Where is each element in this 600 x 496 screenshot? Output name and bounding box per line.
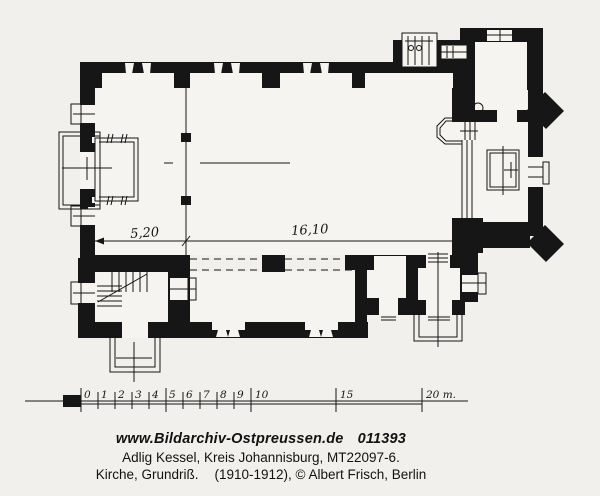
- caption-subject: Kirche, Grundriß.: [96, 467, 199, 482]
- scale-tick-label: 1: [101, 389, 108, 401]
- caption-website-line: www.Bildarchiv-Ostpreussen.de011393: [0, 431, 522, 447]
- scale-tick-label: 3: [135, 389, 142, 401]
- floor-plan-drawing: 5,20 16,10 0 1 2 3 4 5 6 7: [0, 0, 600, 496]
- scale-tick-label: 15: [340, 389, 354, 401]
- scale-tick-label: 2: [117, 389, 125, 401]
- caption-archive-number: 011393: [358, 431, 407, 447]
- scale-tick-label: 0: [84, 389, 91, 401]
- scale-tick-label: 20 m.: [425, 389, 456, 401]
- caption-credit: (1910-1912), © Albert Frisch, Berlin: [214, 467, 426, 482]
- scale-tick-label: 5: [169, 389, 176, 401]
- caption-block: www.Bildarchiv-Ostpreussen.de011393 Adli…: [0, 431, 522, 482]
- scale-bar: 0 1 2 3 4 5 6 7 8 9 10 15 20 m.: [25, 388, 468, 412]
- scale-tick-label: 4: [151, 389, 159, 401]
- scanned-archive-page: { "plan": { "dimension_labels": { "porch…: [0, 0, 600, 496]
- scale-tick-label: 10: [255, 389, 269, 401]
- scale-tick-label: 6: [186, 389, 193, 401]
- caption-website: www.Bildarchiv-Ostpreussen.de: [116, 431, 344, 447]
- scale-tick-labels: 0 1 2 3 4 5 6 7 8 9 10 15 20 m.: [84, 389, 456, 401]
- scale-tick-label: 9: [237, 389, 244, 401]
- caption-credit-line: Kirche, Grundriß.(1910-1912), © Albert F…: [0, 467, 522, 482]
- dimension-label-porch: 5,20: [130, 225, 160, 242]
- caption-location: Adlig Kessel, Kreis Johannisburg, MT2209…: [0, 450, 522, 465]
- scale-tick-label: 7: [203, 389, 210, 401]
- dimension-label-nave: 16,10: [291, 222, 329, 239]
- scale-tick-label: 8: [220, 389, 227, 401]
